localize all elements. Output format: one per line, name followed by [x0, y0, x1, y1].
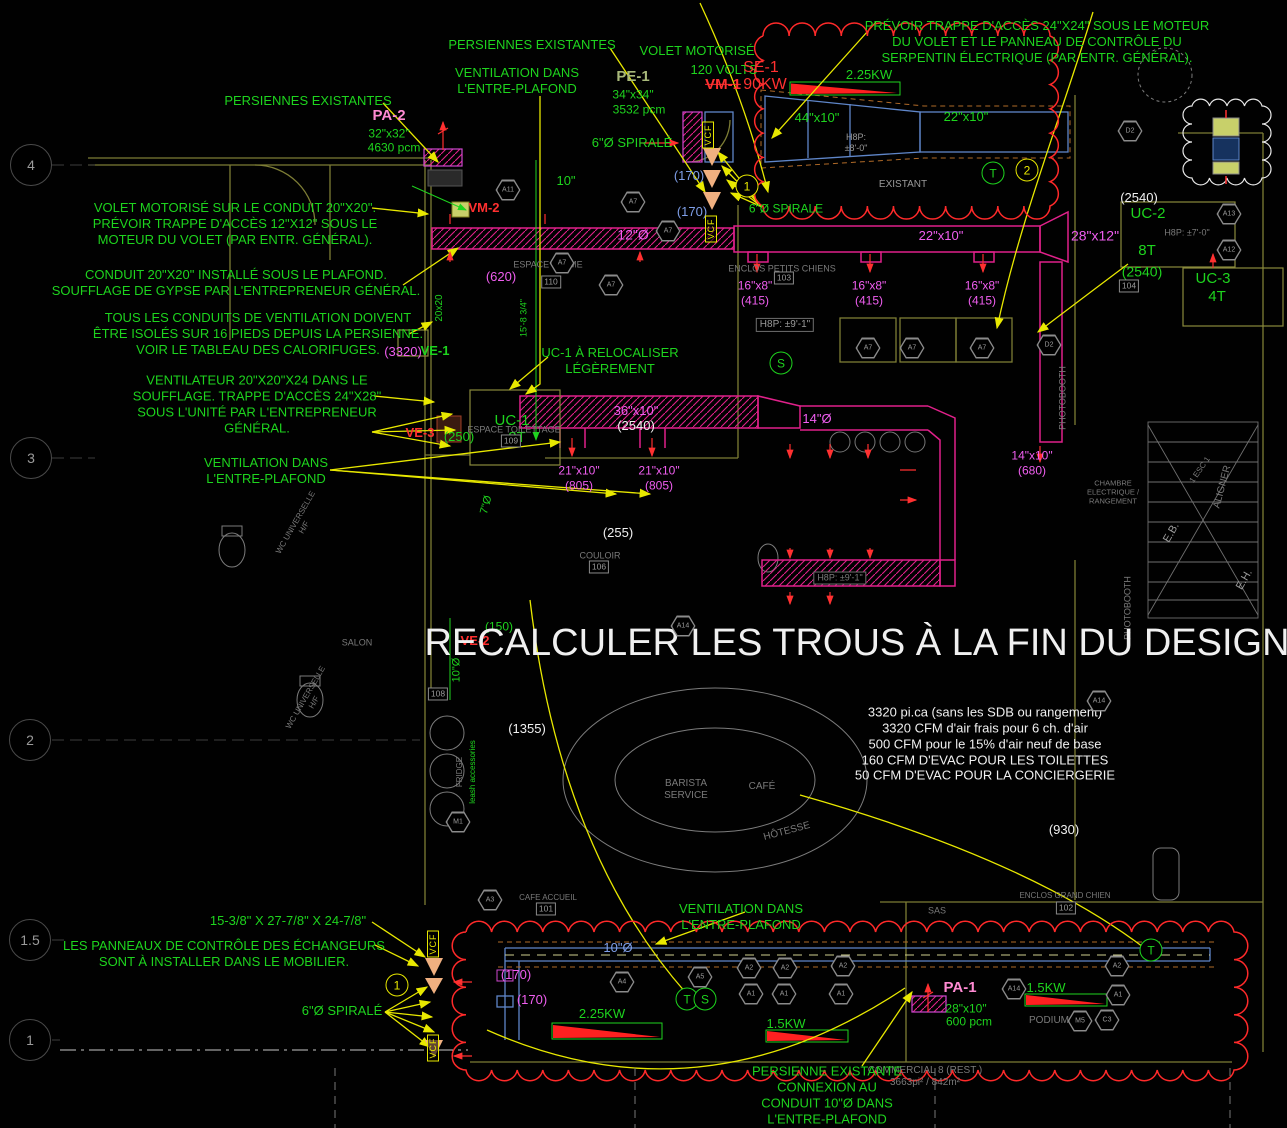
d620: (620): [486, 269, 516, 285]
sas: SAS: [928, 906, 946, 917]
d21x10-a: 21"x10" (805): [558, 463, 599, 492]
uc1-reloc: UC-1 À RELOCALISER LÉGÈREMENT: [541, 345, 678, 377]
d12o: 12"Ø: [617, 226, 648, 243]
vcf-damper-tag: VCF: [427, 931, 439, 958]
hex-tag: A7: [856, 338, 881, 359]
room-number: 102: [1056, 901, 1076, 914]
kw-15-right: 1.5KW: [1026, 980, 1065, 996]
enclos-grand-chien: ENCLOS GRAND CHIEN: [1019, 891, 1110, 901]
grid-bubble-2: 2: [9, 719, 51, 761]
se1: SE-1: [743, 58, 779, 78]
w255: (255): [603, 525, 633, 541]
d22x10-mid: 22"x10": [919, 228, 964, 244]
vm2: VM-2: [468, 200, 499, 216]
room-number: 109: [501, 434, 521, 447]
d14x10: 14"x10" (680): [1011, 448, 1052, 477]
volet-motorise: VOLET MOTORISÉ: [639, 43, 754, 59]
hex-tag: A14: [671, 616, 696, 637]
chambre-elec: CHAMBRE ELECTRIQUE / RANGEMENT: [1087, 478, 1139, 505]
note-ventilateur: VENTILATEUR 20"X20"X24 DANS LE SOUFFLAGE…: [133, 372, 381, 435]
d3320: (3320): [384, 344, 422, 360]
hex-tag: A7: [970, 338, 995, 359]
persiennes-existantes-top: PERSIENNES EXISTANTES: [448, 37, 615, 53]
damper-dark: [428, 170, 462, 186]
flow-arrows: [425, 148, 721, 1058]
walls: [88, 95, 1263, 1062]
hsp-9-1b: H8P: ±9'-1": [813, 572, 866, 585]
espace-calme: ESPACE CALME: [513, 260, 582, 271]
uc2: UC-2: [1130, 205, 1165, 223]
stairs: [1148, 422, 1258, 618]
hex-tag: A7: [599, 275, 624, 296]
salon: SALON: [342, 638, 373, 649]
cafe: CAFÉ: [749, 781, 776, 793]
uc1: UC-1: [494, 412, 529, 430]
grid-bubble-1.5: 1.5: [9, 919, 51, 961]
uc2-2540: (2540): [1122, 263, 1162, 280]
hex-tag: A3: [478, 890, 503, 911]
w2540-tr: (2540): [1120, 190, 1158, 206]
grid-bubble-4: 4: [10, 144, 52, 186]
w930: (930): [1049, 822, 1079, 838]
hex-tag: A1: [772, 984, 797, 1005]
hsp-9-1: H8P: ±9'-1": [756, 318, 814, 332]
uc3-4t: 4T: [1208, 288, 1226, 306]
circle-tag-t: T: [1140, 939, 1163, 962]
pe1-cfm: 3532 pcm: [613, 103, 666, 118]
podium: PODIUM: [1029, 1015, 1069, 1027]
vm1: VM-1: [705, 76, 741, 94]
ventilation-entreplafond-left: VENTILATION DANS L'ENTRE-PLAFOND: [204, 455, 328, 487]
d16x8-a: 16"x8" (415): [738, 278, 773, 307]
commercial-8: COMMERCIAL 8 (REST ) 3663pi² / 842m²: [868, 1065, 982, 1089]
revision-clouds: [452, 23, 1248, 1081]
leader-lines: [330, 3, 1147, 1069]
eb: E.B.: [1161, 521, 1183, 546]
dim-15-8: 15'-8 3/4": [519, 299, 530, 337]
spirale-6-top: 6"Ø SPIRALÉ: [592, 135, 672, 151]
spirale-6-mid: 6"Ø SPIRALE: [749, 202, 823, 217]
room-number: 104: [1119, 279, 1139, 292]
hex-tag: A11: [496, 180, 521, 201]
hex-tag: A7: [656, 221, 681, 242]
eh: E.H.: [1234, 567, 1256, 592]
spirale-6-bottom: 6"Ø SPIRALÉ: [302, 1003, 382, 1019]
pe1-size: 34"x34": [612, 88, 653, 103]
hex-tag: A12: [1217, 240, 1242, 261]
fridge: FRIDGE: [455, 757, 465, 787]
vm2-unit: [452, 202, 469, 217]
kw-225-top: 2.25KW: [846, 67, 892, 83]
hex-tag: A7: [550, 253, 575, 274]
red-arrows: [438, 122, 1213, 1056]
existant: EXISTANT: [879, 179, 927, 191]
ve1: VE-1: [421, 343, 450, 359]
hex-tag: A7: [900, 338, 925, 359]
circle-tag-1: 1: [386, 974, 409, 997]
hex-tag: A1: [829, 984, 854, 1005]
aligner: ALIGNER: [1211, 464, 1234, 510]
hsp-8-0: H8P: ±8'-0": [845, 132, 868, 154]
hex-tag: A1: [1106, 985, 1131, 1006]
pa2-cfm: 4630 pcm: [368, 141, 421, 156]
ve3-250: (250): [444, 429, 474, 445]
d28x12: 28"x12": [1071, 227, 1119, 244]
fixtures: [219, 48, 1192, 900]
uc2-8t: 8T: [1138, 242, 1156, 260]
ve3-unit: [437, 416, 461, 442]
vcf-damper-tag: VCF: [427, 1035, 439, 1062]
circle-tag-2: 2: [1016, 159, 1039, 182]
photobooth-a: PHOTOBOOTH: [1058, 366, 1069, 430]
circle-tag-1: 1: [736, 175, 759, 198]
flex-duct-joints: [830, 432, 925, 452]
note-tous-conduits: TOUS LES CONDUITS DE VENTILATION DOIVENT…: [93, 310, 423, 358]
louvers-magenta: [424, 112, 946, 1012]
esc1: 1 ESC 1: [1187, 455, 1212, 485]
hex-tag: D2: [1118, 121, 1143, 142]
b10o: 10"Ø: [603, 940, 632, 956]
circle-tag-t: T: [982, 162, 1005, 185]
note-trappe-24: PRÉVOIR TRAPPE D'ACCÈS 24"X24" SOUS LE M…: [865, 18, 1210, 66]
hex-tag: A2: [773, 958, 798, 979]
uc1-8t: 8T: [508, 429, 526, 447]
hex-tag: A14: [1002, 979, 1027, 1000]
info-block: 3320 pi.ca (sans les SDB ou rangement) 3…: [855, 704, 1115, 783]
supply-ducts-blue: [497, 96, 1210, 1040]
cafe-accueil: CAFE ACCUEIL: [519, 893, 577, 903]
ve3: VE-3: [406, 425, 435, 441]
volet-120v: 120 VOLTS: [691, 62, 758, 78]
dim-10in: 10": [556, 173, 575, 189]
hex-tag: A2: [737, 958, 762, 979]
hex-tag: M5: [1068, 1011, 1093, 1032]
v150: (150): [485, 620, 513, 635]
room-number: 103: [774, 271, 794, 284]
kw-225-bottom: 2.25KW: [579, 1006, 625, 1022]
kw-15-mid: 1.5KW: [766, 1016, 805, 1032]
pa2-size: 32"x32": [368, 127, 409, 142]
hex-tag: A7: [621, 192, 646, 213]
wc-universelle-b: WC UNIVERSELLE H/F: [284, 665, 336, 736]
hex-tag: A2: [1105, 956, 1130, 977]
ventilation-entreplafond-top: VENTILATION DANS L'ENTRE-PLAFOND: [455, 65, 579, 97]
leash-accessories: leash accessories: [468, 740, 478, 804]
room-number: 101: [536, 902, 556, 915]
d16x8-c: 16"x8" (415): [965, 278, 1000, 307]
hex-tag: A4: [610, 972, 635, 993]
note-panneaux: LES PANNEAUX DE CONTRÔLE DES ÉCHANGEURS …: [63, 938, 385, 970]
green-conduit-lines: [412, 160, 536, 700]
hotesse: HÔTESSE: [762, 820, 811, 844]
wc-universelle-a: WC UNIVERSELLE H/F: [274, 490, 326, 561]
b170-a: (170): [674, 168, 704, 184]
pa2: PA-2: [372, 107, 405, 125]
ventilation-entreplafond-bottom: VENTILATION DANS L'ENTRE-PLAFOND: [679, 901, 803, 933]
couloir: COULOIR: [579, 551, 620, 562]
hex-tag: A1: [739, 984, 764, 1005]
note-conduit-2020: CONDUIT 20"X20" INSTALLÉ SOUS LE PLAFOND…: [52, 267, 421, 299]
circle-tag-t: T: [676, 988, 699, 1011]
b170-b: (170): [677, 204, 707, 220]
dim-7o: 7"Ø: [478, 494, 496, 515]
ducts-magenta: [432, 212, 1068, 586]
persiennes-existantes-left: PERSIENNES EXISTANTES: [224, 93, 391, 109]
hex-tag: A2: [831, 956, 856, 977]
enclos-petits-chiens: ENCLOS PETITS CHIENS: [728, 264, 836, 275]
hex-tag: C3: [1095, 1010, 1120, 1031]
cad-floor-plan: PRÉVOIR TRAPPE D'ACCÈS 24"X24" SOUS LE M…: [0, 0, 1287, 1128]
barista-service: BARISTA SERVICE: [664, 778, 708, 802]
big-note: RECALCULER LES TROUS À LA FIN DU DESIGN: [424, 620, 1287, 666]
room-number: 108: [428, 687, 448, 700]
room-number: 106: [589, 560, 609, 573]
dim-echangeur: 15-3/8" X 27-7/8" X 24-7/8": [210, 913, 366, 929]
damper-box: [497, 970, 513, 981]
note-persienne-bottom: PERSIENNE EXISTANTE CONNEXION AU CONDUIT…: [752, 1063, 902, 1126]
grid-bubble-3: 3: [10, 437, 52, 479]
room-number: 110: [541, 275, 561, 288]
note-volet-conduit: VOLET MOTORISÉ SUR LE CONDUIT 20"X20". P…: [93, 200, 378, 248]
espace-toilettage: ESPACE TOILETTAGE: [467, 425, 560, 436]
dim-10o-vert: 10"Ø: [450, 658, 463, 683]
electric-heater-wedges: [552, 82, 1107, 1042]
kw90: 90KW: [743, 75, 787, 95]
ve2: VE-2: [461, 633, 490, 649]
reference-lines: [52, 165, 1230, 1128]
d170-c: (170): [501, 967, 531, 983]
equipment-boxes: [398, 202, 1283, 465]
circle-tag-s: S: [694, 988, 717, 1011]
pa1-size: 28"x10": [945, 1002, 986, 1017]
photobooth-b: PHOTOBOOTH: [1123, 576, 1134, 640]
w2540-mid: (2540): [617, 418, 655, 434]
dim-2020: 20x20: [434, 294, 446, 321]
pe1: PE-1: [616, 68, 649, 86]
uc3: UC-3: [1195, 270, 1230, 288]
hex-tag: A13: [1217, 204, 1242, 225]
grid-bubble-1: 1: [9, 1019, 51, 1061]
pa1: PA-1: [943, 979, 976, 997]
d170-d: (170): [517, 992, 547, 1008]
hex-tag: A5: [688, 967, 713, 988]
d16x8-b: 16"x8" (415): [852, 278, 887, 307]
vcf-damper-tag: VCF: [702, 122, 714, 149]
hex-tag: D2: [1037, 335, 1062, 356]
detail-cloud: [1183, 99, 1271, 185]
d21x10-b: 21"x10" (805): [638, 463, 679, 492]
hex-tag: A14: [1087, 691, 1112, 712]
size-22x10-top: 22"x10": [944, 109, 989, 125]
pa1-cfm: 600 pcm: [946, 1015, 992, 1030]
d36x10: 36"x10": [614, 403, 659, 419]
plan-linework: [0, 0, 1287, 1128]
duct-insulation-outline: [498, 90, 1216, 967]
vcf-damper-tag: VCF: [705, 216, 717, 243]
hex-tag: M1: [446, 812, 471, 833]
size-44x10: 44"x10": [795, 110, 840, 126]
hsp-7-0: H8P: ±7'-0": [1164, 228, 1209, 239]
d14o: 14"Ø: [802, 411, 831, 427]
circle-tag-s: S: [770, 352, 793, 375]
w1355: (1355): [508, 721, 546, 737]
